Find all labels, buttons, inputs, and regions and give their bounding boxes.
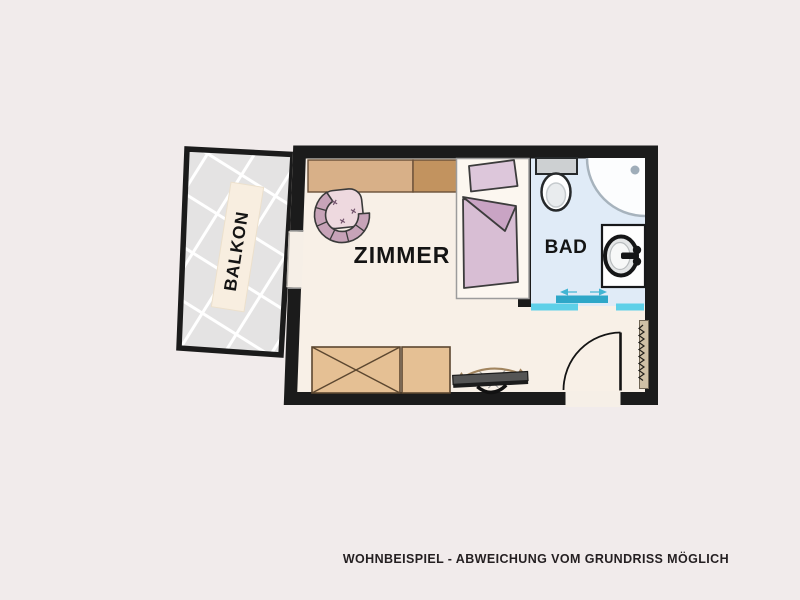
shower-drain-icon: [631, 166, 640, 175]
single-bed: [457, 159, 530, 299]
floor-plan-drawing: BALKON: [0, 0, 800, 600]
washing-machine-hinge-top: [633, 246, 641, 254]
washing-machine: [602, 225, 645, 287]
room-label-bad: BAD: [545, 237, 588, 258]
balcony-door-opening: [287, 231, 303, 288]
wardrobe-right-section: [413, 160, 457, 192]
washing-machine-hinge-bottom: [633, 257, 641, 265]
wall-opening-gap: [294, 232, 296, 288]
sliding-door-rail-left: [531, 304, 578, 311]
disclaimer-caption: WOHNBEISPIEL - ABWEICHUNG VOM GRUNDRISS …: [343, 552, 729, 566]
radiator: [639, 321, 649, 389]
wardrobe-left-section: [308, 160, 413, 192]
bed-pillow: [469, 160, 518, 192]
sliding-door-panel: [556, 296, 608, 304]
balcony: BALKON: [179, 149, 293, 355]
wardrobe: [308, 160, 457, 192]
floor-plan-page: BALKON: [0, 0, 800, 600]
sideboard-right: [402, 347, 450, 393]
toilet-bowl-inner: [547, 183, 566, 207]
room-label-zimmer: ZIMMER: [354, 242, 451, 268]
washing-machine-handle: [621, 253, 637, 260]
toilet-cistern: [536, 158, 577, 174]
sliding-door-rail-right: [616, 304, 644, 311]
sideboard: [312, 347, 450, 393]
entry-door-opening: [566, 391, 621, 407]
